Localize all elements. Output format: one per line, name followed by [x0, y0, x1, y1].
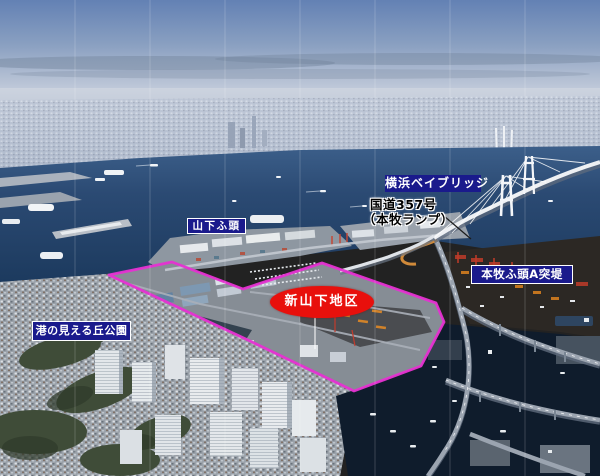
label-yokohama-bay-bridge: 横浜ベイブリッジ [385, 175, 481, 192]
label-honmoku-pier-a: 本牧ふ頭A突堤 [471, 265, 573, 284]
photo-scene [0, 0, 600, 476]
container-terminal [445, 236, 600, 338]
label-route-357-line2: （本牧ランプ） [363, 213, 454, 228]
label-route-357-line1: 国道357号 [363, 198, 454, 213]
aerial-photo: 横浜ベイブリッジ 国道357号 （本牧ランプ） 山下ふ頭 本牧ふ頭A突堤 新山下… [0, 0, 600, 476]
label-route-357-honmoku-ramp: 国道357号 （本牧ランプ） [363, 198, 454, 227]
label-shin-yamashita-district: 新山下地区 [270, 286, 374, 318]
label-yamashita-pier: 山下ふ頭 [187, 218, 246, 234]
label-shin-yamashita-district-text: 新山下地区 [284, 294, 359, 309]
label-harbor-view-park: 港の見える丘公園 [32, 321, 131, 341]
